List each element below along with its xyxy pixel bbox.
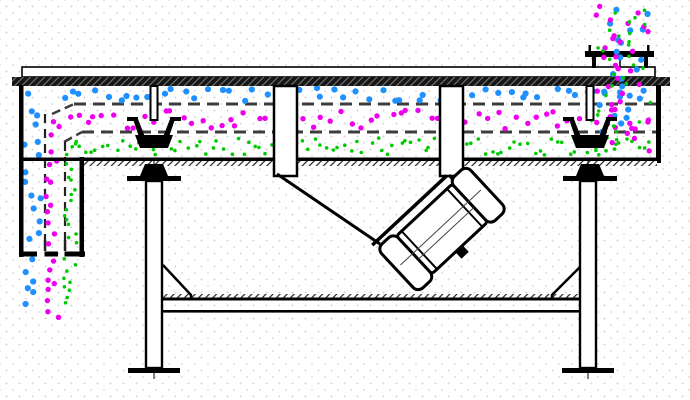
inlet-tick-right [647, 45, 650, 51]
particle-dot [374, 113, 379, 118]
particle-dot [539, 149, 543, 153]
particle-dot [597, 102, 603, 108]
particle-dot [352, 88, 358, 94]
deck-top-flange [12, 77, 670, 86]
particle-dot [380, 149, 384, 153]
particle-dot [69, 199, 73, 203]
particle-dot [638, 120, 642, 124]
particle-dot [491, 150, 495, 154]
particle-dot [65, 269, 69, 273]
particle-dot [62, 95, 68, 101]
particle-dot [646, 117, 651, 122]
particle-dot [649, 101, 653, 105]
particle-dot [612, 107, 617, 112]
particle-dot [634, 66, 640, 72]
particle-layer-under [21, 85, 652, 320]
particle-dot [625, 131, 630, 136]
particle-dot [152, 148, 156, 152]
particle-dot [63, 214, 67, 218]
particle-dot [48, 203, 53, 208]
particle-dot [89, 150, 93, 154]
particle-dot [502, 126, 507, 131]
particle-dot [45, 220, 50, 225]
particle-dot [65, 296, 69, 300]
particle-dot [65, 162, 69, 166]
particle-dot [608, 17, 613, 22]
particle-dot [465, 142, 469, 146]
particle-dot [597, 153, 601, 157]
particle-dot [70, 145, 74, 149]
particle-dot [609, 102, 614, 107]
particle-dot [610, 140, 615, 145]
particle-dot [340, 94, 346, 100]
particle-dot [49, 132, 54, 137]
particle-dot [75, 91, 81, 97]
particle-dot [586, 151, 590, 155]
spring-hanger-left [151, 86, 158, 120]
particle-dot [106, 94, 112, 100]
particle-dot [637, 82, 642, 87]
particle-dot [544, 111, 549, 116]
particle-dot [25, 91, 31, 97]
particle-dot [45, 278, 50, 283]
particle-dot [37, 218, 43, 224]
particle-dot [615, 76, 620, 81]
particle-dot [51, 258, 56, 263]
particle-dot [67, 223, 71, 227]
particle-dot [262, 116, 267, 121]
particle-dot [417, 97, 423, 103]
particle-dot [232, 123, 237, 128]
particle-dot [627, 40, 631, 44]
particle-dot [30, 289, 36, 295]
particle-dot [29, 108, 35, 114]
particle-dot [618, 120, 624, 126]
particle-dot [523, 90, 529, 96]
particle-dot [625, 107, 631, 113]
particle-dot [25, 285, 31, 291]
beam-hatch [157, 294, 586, 298]
particle-dot [125, 126, 130, 131]
particle-dot [45, 209, 50, 214]
particle-dot [182, 115, 187, 120]
particle-dot [45, 298, 50, 303]
particle-dot [534, 94, 540, 100]
particle-dot [358, 125, 363, 130]
particle-dot [300, 116, 305, 121]
particle-dot [99, 113, 104, 118]
particle-dot [572, 92, 578, 98]
vibrating-screen-diagram [0, 0, 690, 400]
particle-dot [70, 168, 74, 172]
particle-dot [596, 113, 600, 117]
particle-dot [371, 141, 375, 145]
particle-dot [426, 146, 430, 150]
left-wall [19, 85, 24, 257]
particle-dot [77, 113, 82, 118]
particle-dot [134, 147, 138, 151]
particle-dot [391, 112, 396, 117]
top-mesh-lip [52, 104, 74, 114]
particle-dot [186, 146, 190, 150]
particle-dot [240, 110, 245, 115]
particle-dot [242, 98, 248, 104]
particle-dot [624, 115, 630, 121]
particle-dot [317, 94, 323, 100]
particle-dot [328, 118, 333, 123]
mid-mesh-lip [64, 132, 82, 142]
particle-dot [518, 142, 522, 146]
particle-dot [577, 116, 582, 121]
particle-dot [142, 114, 147, 119]
chute-partition-2-end [64, 240, 67, 251]
particle-dot [555, 86, 561, 92]
particle-dot [38, 195, 44, 201]
particle-dot [77, 145, 81, 149]
particle-dot [116, 149, 120, 153]
particle-dot [637, 96, 643, 102]
particle-dot [318, 115, 323, 120]
spring-upper-right [563, 117, 617, 148]
particle-dot [614, 49, 620, 55]
particle-dot [144, 94, 150, 100]
particle-dot [74, 263, 78, 267]
deck-floor-hatch [84, 161, 657, 166]
particle-dot [604, 94, 608, 98]
particle-dot [641, 66, 645, 70]
particle-dot [604, 149, 608, 153]
particle-dot [265, 91, 271, 97]
particle-dot [573, 150, 577, 154]
particle-dot [214, 139, 218, 143]
particle-dot [627, 55, 631, 59]
spring-lower-right [563, 164, 617, 181]
inlet-leg-right [644, 57, 648, 68]
particle-dot [403, 108, 408, 113]
chute-bottom-left [19, 252, 37, 257]
particle-dot [569, 152, 573, 156]
particle-dot [205, 86, 211, 92]
particle-dot [477, 137, 481, 141]
particle-dot [477, 111, 482, 116]
particle-dot [628, 20, 632, 24]
inlet-leg-left [592, 57, 596, 68]
particle-dot [630, 49, 635, 54]
particle-dot [46, 241, 51, 246]
particle-dot [204, 152, 208, 156]
particle-dot [594, 149, 598, 153]
particle-dot [396, 97, 402, 103]
particle-dot [645, 29, 650, 34]
particle-dot [647, 148, 652, 153]
particle-dot [615, 130, 619, 134]
particle-dot [62, 277, 66, 281]
cross-support-right [440, 86, 463, 176]
particle-dot [403, 139, 407, 143]
particle-dot [30, 278, 36, 284]
left-leg [128, 161, 180, 379]
particle-dot [380, 87, 386, 93]
spring-hanger-right [587, 86, 594, 120]
particle-dot [560, 141, 564, 145]
particle-dot [643, 23, 647, 27]
particle-dot [311, 125, 316, 130]
particle-dot [433, 137, 437, 141]
particle-dot [63, 285, 67, 289]
particle-dot [195, 144, 199, 148]
particle-dot [69, 178, 73, 182]
particle-dot [64, 301, 68, 305]
particle-dot [534, 115, 539, 120]
particle-dot [629, 126, 634, 131]
particle-dot [34, 112, 40, 118]
particle-dot [65, 153, 69, 157]
particle-dot [222, 147, 226, 151]
particle-dot [62, 257, 66, 261]
particle-dot [594, 12, 599, 17]
particle-dot [610, 36, 615, 41]
particle-dot [509, 89, 515, 95]
particle-dot [420, 92, 426, 98]
particle-dot [106, 144, 110, 148]
particle-dot [496, 152, 500, 156]
particle-dot [301, 139, 305, 143]
particle-dot [220, 87, 226, 93]
particle-dot [191, 95, 197, 101]
particle-dot [597, 4, 602, 9]
particle-dot [594, 120, 599, 125]
particle-dot [495, 90, 501, 96]
vibration-motor-assembly [277, 160, 510, 297]
particle-dot [45, 309, 50, 314]
particle-dot [628, 32, 632, 36]
particle-dot [350, 149, 354, 153]
particle-dot [178, 140, 182, 144]
particle-dot [130, 125, 135, 130]
particle-dot [263, 152, 267, 156]
particle-dot [617, 34, 621, 38]
particle-dot [366, 96, 372, 102]
particle-dot [483, 86, 489, 92]
particle-dot [31, 205, 37, 211]
particle-dot [526, 142, 530, 146]
gusset-left [163, 265, 191, 298]
particle-dot [595, 88, 600, 93]
particle-dot [29, 256, 35, 262]
particle-dot [228, 117, 233, 122]
particle-dot [65, 218, 69, 222]
particle-dot [219, 123, 224, 128]
particle-dot [173, 149, 177, 153]
particle-dot [51, 119, 56, 124]
particle-dot [74, 232, 78, 236]
particle-dot [485, 116, 490, 121]
particle-dot [167, 108, 172, 113]
particle-dot [608, 28, 612, 32]
particle-dot [90, 114, 95, 119]
particle-dot [499, 151, 503, 155]
vibration-motor [371, 160, 510, 297]
particle-dot [625, 82, 629, 86]
particle-dot [119, 97, 125, 103]
particle-dot [23, 301, 29, 307]
particle-dot [70, 193, 74, 197]
chute-partition-1-end [44, 240, 47, 251]
particle-dot [111, 112, 116, 117]
particle-dot [338, 109, 343, 114]
particle-dot [75, 241, 79, 245]
particle-dot [168, 86, 174, 92]
particle-dot [360, 151, 364, 155]
particle-dot [48, 180, 53, 185]
particle-dot [610, 84, 614, 88]
particle-dot [386, 153, 390, 157]
particle-dot [257, 146, 261, 150]
particle-dot [469, 92, 475, 98]
cross-support-left [274, 86, 297, 176]
particle-dot [318, 143, 322, 147]
beam-bottom-chord [157, 310, 586, 313]
particle-dot [335, 146, 339, 150]
particle-dot [632, 136, 637, 141]
particle-dot [183, 88, 189, 94]
particle-dot [613, 54, 618, 59]
particle-dot [247, 140, 251, 144]
particle-dot [212, 146, 216, 150]
particle-dot [525, 121, 530, 126]
deck-floor [19, 158, 657, 162]
particle-dot [618, 99, 623, 104]
particle-dot [226, 88, 232, 94]
particle-dot [170, 147, 174, 151]
particle-dot [635, 10, 640, 15]
particle-dot [377, 136, 381, 140]
support-legs [128, 161, 614, 379]
particle-dot [633, 16, 637, 20]
particle-dot [638, 146, 642, 150]
particle-dot [65, 208, 69, 212]
particle-dot [231, 152, 235, 156]
particle-dot [555, 123, 560, 128]
particle-dot [369, 117, 374, 122]
particle-dot [56, 124, 61, 129]
particle-dot [257, 116, 262, 121]
particle-dot [93, 148, 97, 152]
particle-dot [469, 141, 473, 145]
particle-dot [647, 140, 651, 144]
particle-dot [249, 86, 255, 92]
particle-dot [556, 140, 560, 144]
particle-dot [638, 57, 644, 63]
particle-dot [86, 120, 91, 125]
particle-dot [332, 148, 336, 152]
right-leg [562, 161, 614, 379]
particle-dot [632, 63, 636, 67]
particle-dot [613, 147, 617, 151]
particle-dot [92, 87, 98, 93]
particle-dot [543, 153, 547, 157]
particle-dot [123, 93, 129, 99]
particle-dot [641, 88, 647, 94]
particle-dot [36, 152, 42, 158]
particle-dot [615, 138, 619, 142]
particle-dot [52, 281, 57, 286]
particle-dot [496, 110, 501, 115]
particle-dot [70, 89, 76, 95]
particle-dot [52, 231, 57, 236]
particle-dot [46, 287, 51, 292]
particle-dot [350, 121, 355, 126]
particle-dot [601, 55, 606, 60]
particle-dot [121, 139, 125, 143]
particle-dot [74, 140, 78, 144]
particle-dot [622, 76, 626, 80]
particle-dot [153, 153, 157, 157]
particle-dot [26, 236, 32, 242]
particle-dot [133, 95, 139, 101]
particle-dot [189, 121, 194, 126]
particle-dot [597, 109, 601, 113]
particle-dot [627, 93, 633, 99]
particle-dot [101, 145, 105, 149]
chute-bottom-right [65, 252, 86, 257]
particle-dot [627, 43, 631, 47]
particle-dot [550, 137, 554, 141]
particle-dot [23, 269, 29, 275]
particle-dot [43, 194, 48, 199]
particle-dot [613, 11, 617, 15]
chute-right-wall [80, 157, 85, 257]
particle-dot [33, 121, 39, 127]
particle-dot [162, 91, 168, 97]
particle-dot [73, 188, 77, 192]
particle-dot [566, 88, 572, 94]
particle-dot [209, 125, 214, 130]
particle-dot [355, 140, 359, 144]
right-wall [656, 85, 661, 163]
particle-dot [343, 143, 347, 147]
particle-dot [608, 58, 612, 62]
particle-dot [201, 118, 206, 123]
particle-dot [415, 108, 420, 113]
particle-dot [84, 151, 88, 155]
particle-dot [514, 115, 519, 120]
particle-dot [48, 149, 53, 154]
particle-dot [237, 137, 241, 141]
cover-plate [22, 67, 655, 77]
particle-dot [620, 91, 625, 96]
particle-dot [35, 139, 41, 145]
particle-dot [612, 124, 616, 128]
particle-dot [550, 109, 555, 114]
gusset-right [552, 267, 580, 298]
particle-dot [612, 73, 616, 77]
particle-dot [619, 83, 625, 89]
spring-lower-left [127, 164, 181, 181]
particle-dot [198, 140, 202, 144]
chute-bottom-mid [45, 252, 59, 257]
particle-dot [314, 137, 318, 141]
particle-dot [601, 49, 605, 53]
particle-dot [253, 145, 257, 149]
particle-dot [47, 162, 52, 167]
particle-dot [68, 114, 73, 119]
beam-top-chord [157, 298, 586, 301]
particle-dot [67, 236, 71, 240]
particle-dot [625, 137, 629, 141]
particle-dot [409, 141, 413, 145]
particle-dot [596, 46, 600, 50]
